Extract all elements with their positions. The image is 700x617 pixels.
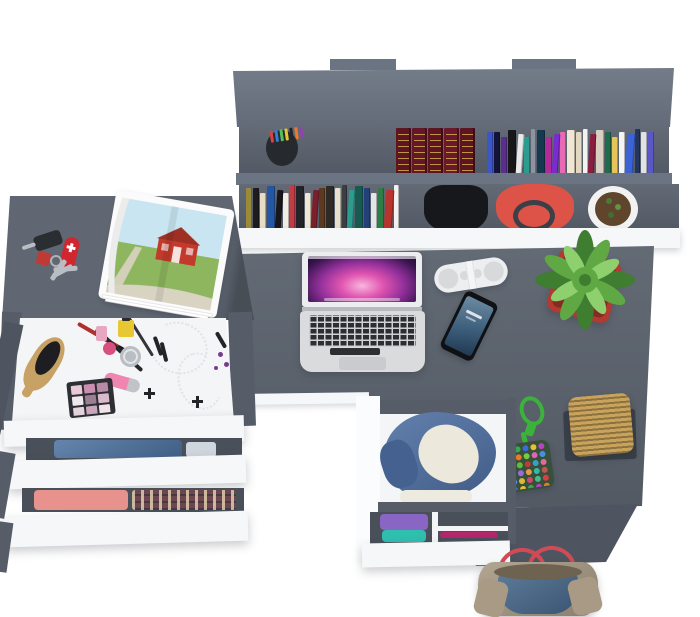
color-chip xyxy=(508,130,516,174)
color-chip xyxy=(541,466,548,473)
laptop-spacebar xyxy=(330,348,380,355)
knife-cross-horizontal xyxy=(66,245,75,250)
color-chip xyxy=(296,186,304,230)
color-chip xyxy=(648,132,654,174)
color-chip xyxy=(384,190,395,230)
color-chip xyxy=(536,483,543,490)
color-chip xyxy=(522,445,529,452)
shelf-mount-tab-left xyxy=(330,59,396,70)
color-chip xyxy=(525,469,532,476)
upper-book-row xyxy=(487,127,667,174)
color-chip xyxy=(73,407,85,416)
color-chip xyxy=(284,128,289,140)
color-chip xyxy=(412,128,427,174)
laptop-keyboard xyxy=(309,315,416,347)
color-chip xyxy=(635,129,640,174)
black-backpack xyxy=(424,185,488,233)
color-chip xyxy=(267,186,275,230)
color-chip xyxy=(516,462,523,469)
laptop-screen xyxy=(308,256,416,302)
encyclopedia-set xyxy=(396,128,484,174)
planter-soil xyxy=(595,192,631,226)
laptop-trackpad xyxy=(339,357,386,370)
color-chip xyxy=(528,485,535,491)
color-chip xyxy=(527,477,534,484)
folded-plaid-shirt xyxy=(132,490,236,510)
color-chip xyxy=(515,454,522,461)
color-chip xyxy=(537,130,545,174)
color-chip xyxy=(534,476,541,483)
denim-jacket xyxy=(384,410,504,504)
purple-shirt xyxy=(380,514,428,530)
color-chip xyxy=(524,461,531,468)
teal-shirt xyxy=(382,530,426,542)
desk-front-edge xyxy=(238,392,369,405)
color-chip xyxy=(85,394,97,404)
wicker-basket xyxy=(568,392,635,457)
pens xyxy=(268,125,298,143)
cream-jar xyxy=(120,346,141,367)
color-chip xyxy=(96,382,108,392)
dock xyxy=(324,298,400,301)
drawer-mid-rail xyxy=(378,502,508,512)
makeup-drawer-interior xyxy=(12,318,234,422)
color-chip xyxy=(531,129,536,174)
earring-2 xyxy=(224,362,229,367)
tote-opening xyxy=(494,564,582,580)
color-chip xyxy=(444,128,459,174)
perfume-bottle xyxy=(96,326,107,341)
palette-shades xyxy=(70,381,114,416)
color-chip xyxy=(371,193,377,230)
color-chip xyxy=(520,486,527,491)
plant-foliage xyxy=(528,224,638,332)
lower-book-row xyxy=(246,185,418,230)
color-chip xyxy=(538,443,545,450)
color-chip xyxy=(290,185,295,230)
color-chip xyxy=(530,444,537,451)
color-chip xyxy=(246,188,252,230)
color-chip xyxy=(274,130,279,142)
hairbrush-bristles xyxy=(30,337,65,379)
speaker-grille-right xyxy=(482,260,505,283)
drawer-divider-horizontal xyxy=(438,526,508,531)
hairbrush xyxy=(16,331,72,397)
color-chip xyxy=(72,396,84,406)
speaker-grille-left xyxy=(437,267,460,290)
color-chip xyxy=(576,132,582,174)
planter-sprout xyxy=(606,198,612,204)
tote-bag xyxy=(474,546,604,617)
eyeshadow-palette xyxy=(66,378,116,419)
color-chip xyxy=(396,128,411,174)
color-chip xyxy=(501,137,507,174)
cross-charm-horizontal xyxy=(192,400,203,403)
color-chip xyxy=(289,128,294,140)
color-chip xyxy=(428,128,443,174)
color-chip xyxy=(86,405,98,415)
color-chip xyxy=(539,451,546,458)
folded-pink-shirt xyxy=(34,490,128,510)
color-chip xyxy=(533,468,540,475)
shelf-top-panel xyxy=(233,68,674,127)
color-chip xyxy=(335,188,341,230)
desk-room-render xyxy=(0,0,700,617)
color-chip xyxy=(98,393,110,403)
color-chip xyxy=(394,185,399,230)
hair-clip-3 xyxy=(215,331,227,349)
color-chip xyxy=(519,478,526,485)
earring-1 xyxy=(218,352,223,357)
color-chip xyxy=(542,474,549,481)
pen-cup xyxy=(266,130,298,166)
laptop xyxy=(300,252,425,372)
color-chip xyxy=(487,132,493,174)
shelf-mount-tab-right xyxy=(512,59,576,70)
color-chip xyxy=(625,134,636,174)
color-chip xyxy=(560,132,566,174)
nail-polish xyxy=(118,320,134,337)
dresser-front-2 xyxy=(4,511,249,548)
color-chip xyxy=(641,132,647,174)
color-chip xyxy=(518,470,525,477)
color-chip xyxy=(364,188,370,230)
second-drawer-opening xyxy=(370,512,508,544)
magazine xyxy=(97,189,235,322)
color-chip xyxy=(605,132,611,174)
color-chip xyxy=(279,129,284,141)
dresser-front-1 xyxy=(8,455,247,490)
color-chip xyxy=(269,130,274,142)
perfume-round xyxy=(103,342,116,355)
color-chip xyxy=(71,385,83,395)
hairbrush-handle-tail xyxy=(20,377,38,399)
color-chip xyxy=(355,186,363,230)
jar-lid-ring xyxy=(123,349,138,364)
cross-charm-2-horizontal xyxy=(144,392,155,395)
menu-bar xyxy=(308,256,416,259)
color-chip xyxy=(524,137,530,174)
color-chip xyxy=(283,193,289,230)
color-chip xyxy=(544,482,551,489)
color-chip xyxy=(567,130,575,174)
color-chip xyxy=(494,132,500,174)
color-chip xyxy=(260,193,266,230)
color-chip xyxy=(523,453,530,460)
color-chip xyxy=(99,404,111,414)
color-chip xyxy=(319,188,325,230)
dresser-slot-2 xyxy=(22,488,244,512)
color-chip xyxy=(460,128,475,174)
magenta-cloth xyxy=(440,532,498,538)
color-chip xyxy=(532,460,539,467)
color-chip xyxy=(612,137,618,174)
earring-3 xyxy=(214,366,218,370)
color-chip xyxy=(596,130,604,174)
lipgloss-cap xyxy=(126,378,141,394)
color-chip xyxy=(253,188,259,230)
color-chip xyxy=(531,452,538,459)
color-chip xyxy=(84,384,96,394)
color-chip xyxy=(326,186,334,230)
folded-denim xyxy=(54,440,182,458)
color-chip xyxy=(540,459,547,466)
